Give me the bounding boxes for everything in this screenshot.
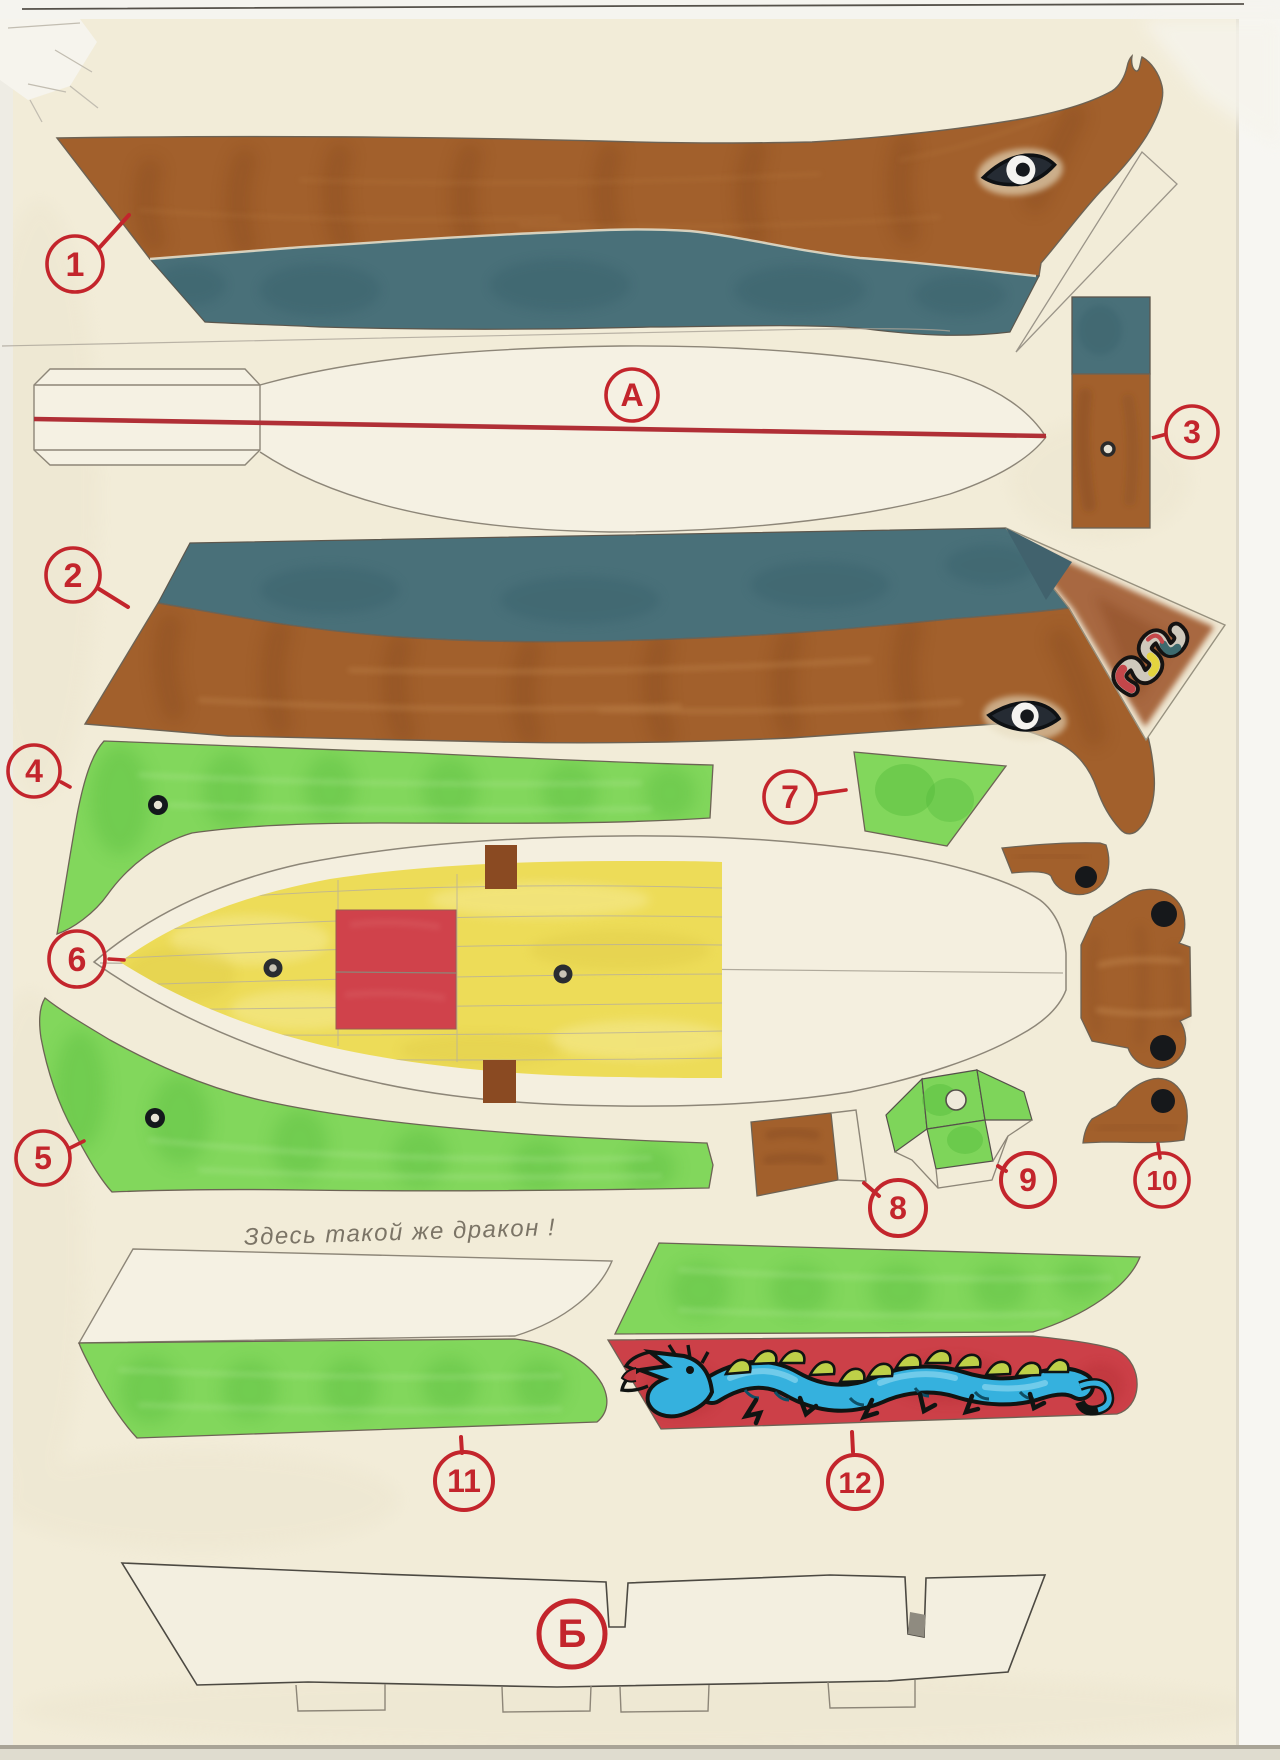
- svg-text:8: 8: [889, 1190, 907, 1226]
- svg-text:6: 6: [68, 941, 87, 979]
- svg-text:1: 1: [66, 246, 85, 284]
- svg-text:12: 12: [838, 1467, 871, 1500]
- svg-text:9: 9: [1019, 1162, 1037, 1198]
- svg-text:4: 4: [25, 753, 43, 789]
- svg-text:10: 10: [1146, 1165, 1177, 1196]
- svg-text:A: A: [620, 377, 643, 413]
- svg-text:2: 2: [64, 557, 83, 595]
- svg-text:7: 7: [781, 779, 799, 815]
- svg-text:3: 3: [1183, 414, 1201, 450]
- svg-text:5: 5: [34, 1140, 52, 1176]
- svg-text:Б: Б: [558, 1612, 587, 1656]
- svg-text:11: 11: [447, 1463, 481, 1499]
